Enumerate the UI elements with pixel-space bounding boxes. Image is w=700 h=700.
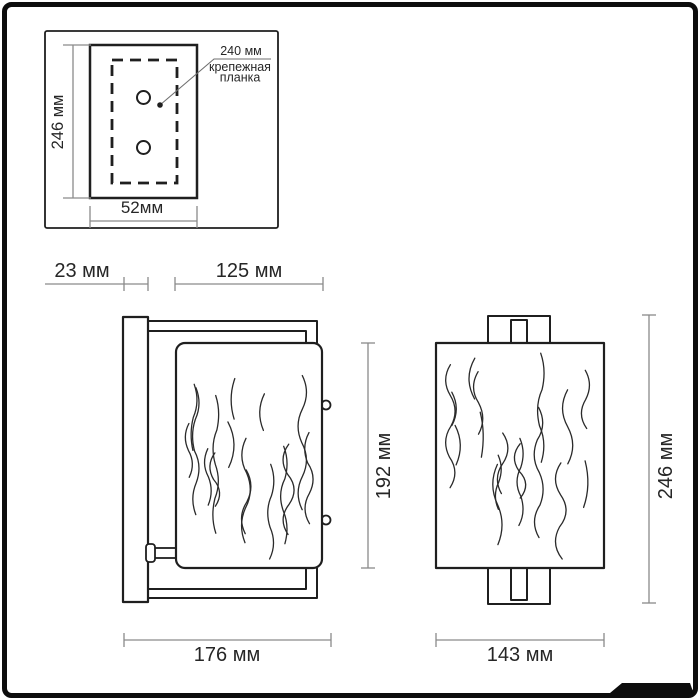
front-width-dimension: 143 мм: [436, 633, 604, 666]
front-height-label: 246 мм: [655, 433, 677, 499]
inset-height-label: 246 мм: [49, 95, 67, 150]
bottom-bracket-notch: [511, 568, 527, 600]
top-width-label: 125 мм: [216, 260, 282, 282]
shade-height-dimension: 192 мм: [361, 343, 395, 568]
shade-side: [176, 343, 322, 568]
shade-front: [436, 343, 604, 568]
top-bracket-notch: [511, 320, 527, 343]
wall-depth-dimension: 23 мм: [45, 260, 148, 291]
drawing-svg: 246 мм 52мм 240 мм крепежная планка: [0, 0, 700, 700]
callout-dot: [157, 102, 163, 108]
frame-corner-shape: [610, 683, 694, 693]
wall-depth-label: 23 мм: [54, 260, 109, 282]
inset-width-label: 52мм: [121, 198, 163, 217]
connector-flange: [146, 544, 155, 562]
bottom-arm-inner: [148, 568, 306, 589]
top-arm-inner: [148, 331, 306, 343]
front-height-dimension: 246 мм: [642, 315, 677, 603]
side-view: 23 мм 125 мм 192 мм 176 мм: [45, 260, 395, 666]
callout-dim-label: 240 мм: [220, 44, 262, 58]
front-view: 246 мм 143 мм: [436, 315, 677, 666]
bottom-bracket: [488, 568, 550, 604]
top-width-dimension: 125 мм: [175, 260, 323, 291]
connector-stub: [154, 548, 178, 558]
total-width-dimension: 176 мм: [124, 633, 331, 666]
shade-height-label: 192 мм: [373, 433, 395, 499]
lamp-dimension-drawing: 246 мм 52мм 240 мм крепежная планка: [0, 0, 700, 700]
total-width-label: 176 мм: [194, 644, 260, 666]
bottom-arm-outer: [148, 568, 317, 598]
callout-text-line2: планка: [220, 71, 261, 85]
front-width-label: 143 мм: [487, 644, 553, 666]
wall-plate: [123, 317, 148, 602]
mounting-plate-inset: 246 мм 52мм 240 мм крепежная планка: [45, 31, 278, 228]
